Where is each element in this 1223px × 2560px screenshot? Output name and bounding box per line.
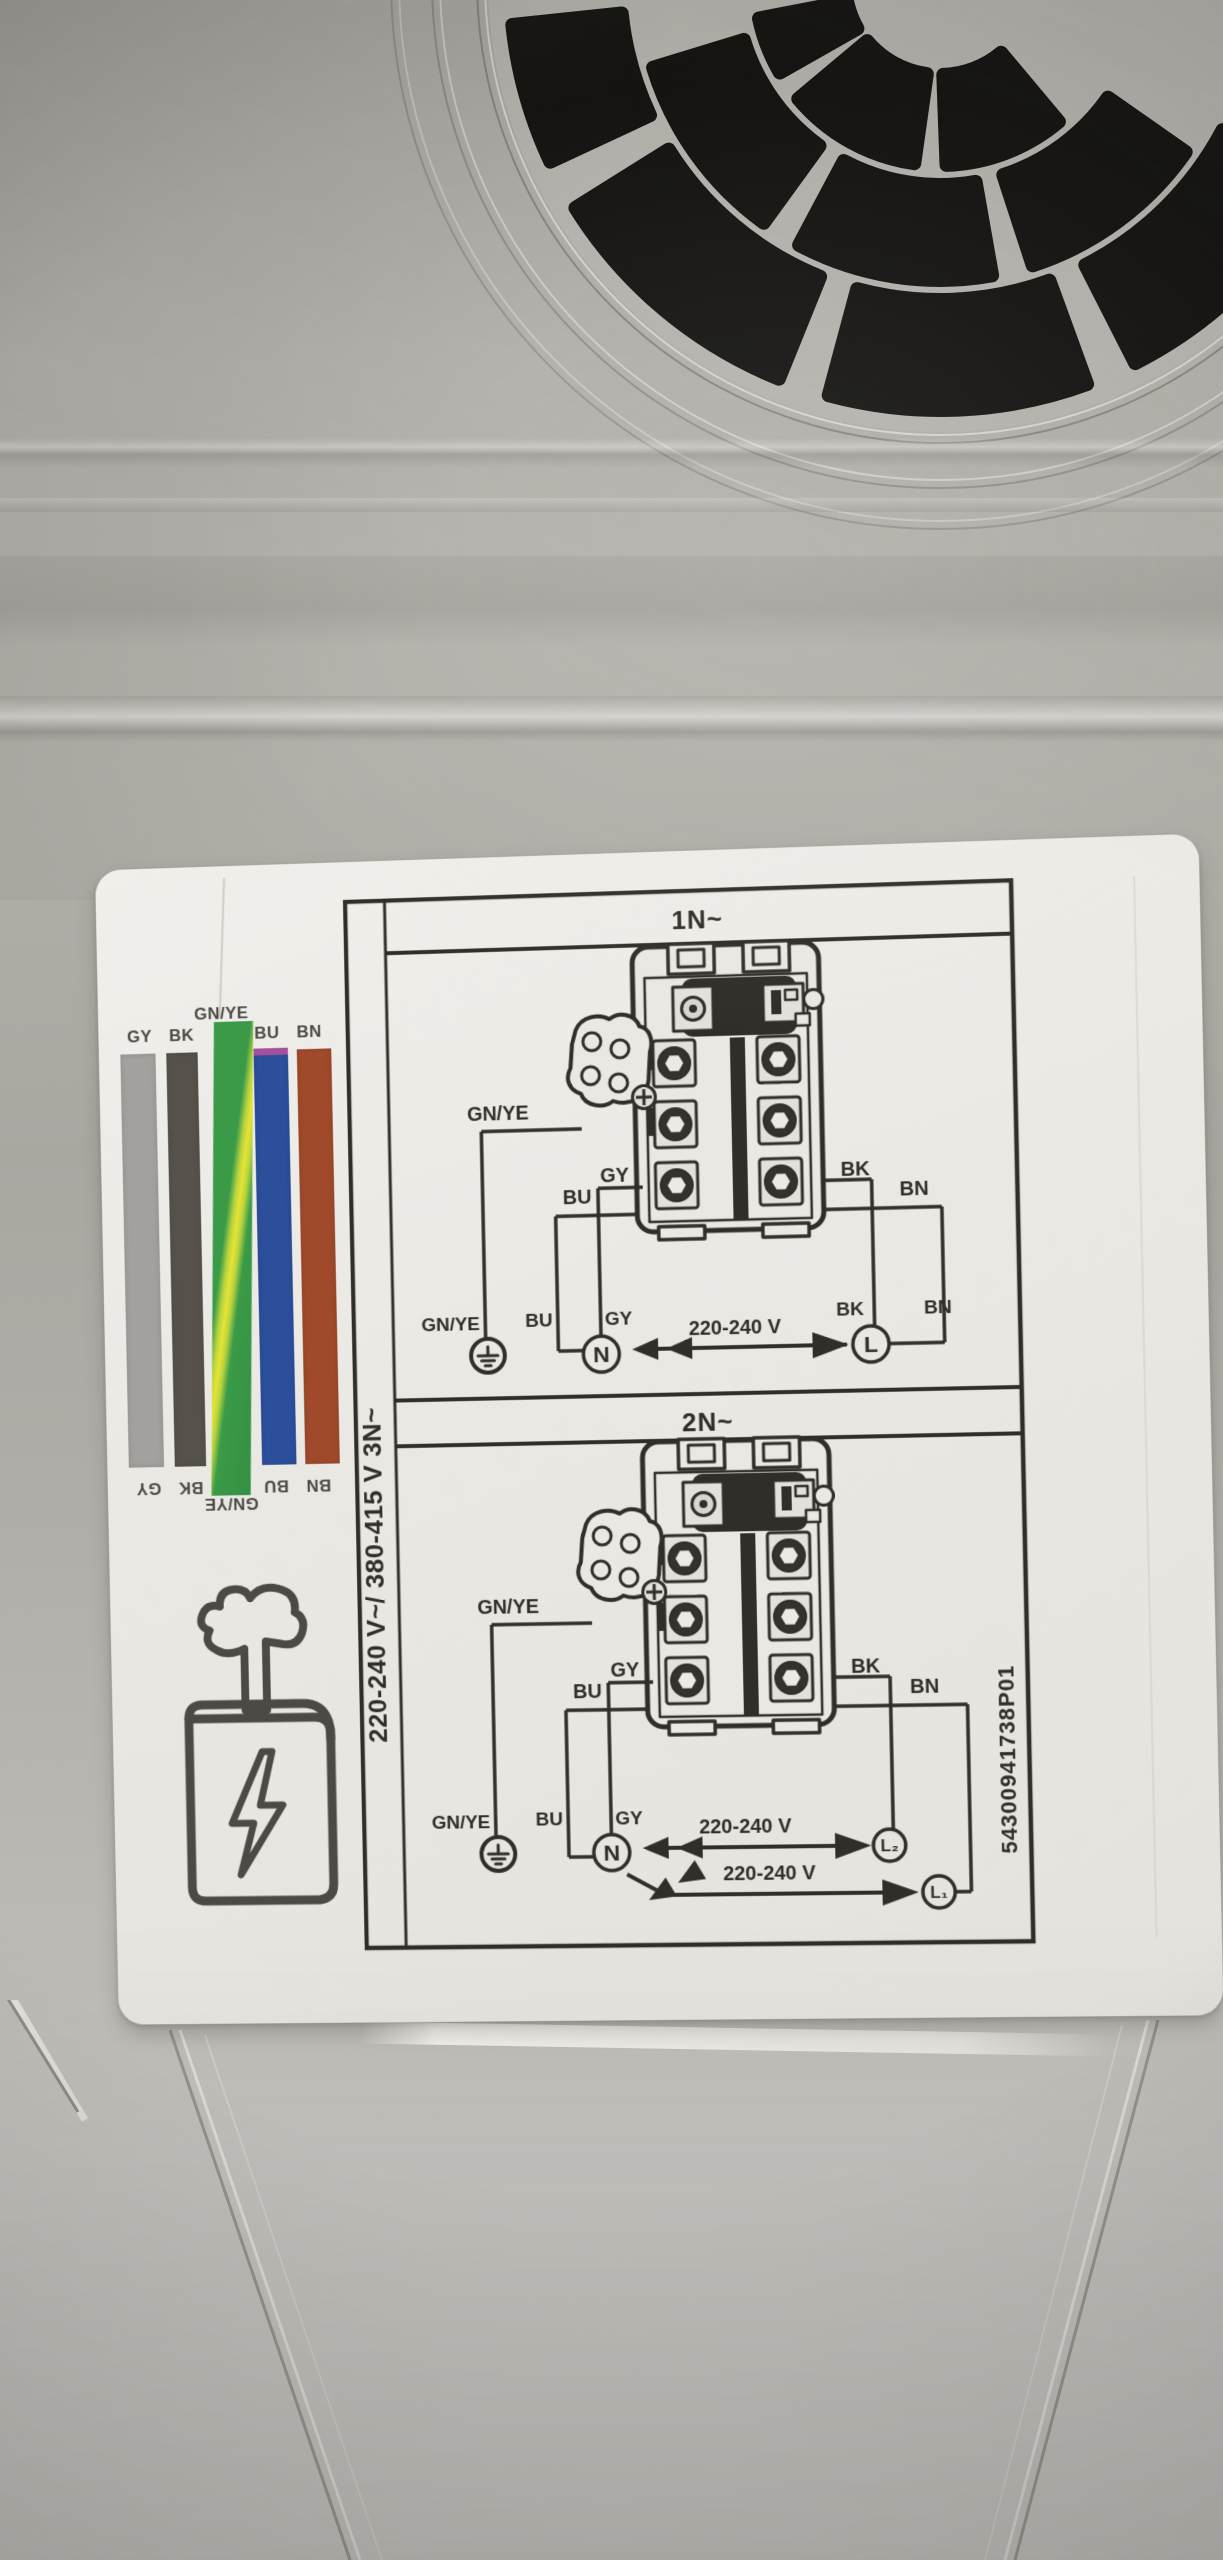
wire-code-label-bn: BN: [279, 1021, 338, 1043]
wire-color-key: GY BK GN/YE BU BN GY BK GN/YE BU BN: [95, 834, 1199, 871]
lower-label-gnye-1n: GN/YE: [421, 1314, 480, 1336]
wire-bn-1n: [824, 1207, 945, 1345]
wire-bn-2n: [834, 1704, 971, 1893]
line-letter-1n: L: [864, 1331, 879, 1358]
sticker-scratch: [219, 878, 225, 1017]
voltage-label-n-l2: 220-240 V: [699, 1815, 793, 1838]
upper-label-gnye-1n: GN/YE: [467, 1102, 529, 1126]
section-title-1n: 1N~: [671, 905, 723, 935]
wire-gnye-2n: [492, 1623, 597, 1837]
neutral-letter-2n: N: [603, 1839, 620, 1865]
lower-label-gy-2n: GY: [615, 1808, 643, 1829]
voltage-label-n-l1: 220-240 V: [723, 1862, 817, 1885]
cooling-fan-grille: [0, 0, 1223, 620]
upper-label-bk-2n: BK: [851, 1655, 881, 1678]
connection-diagram-box: 1N~ 2N~ 220-240 V~/ 380-415 V 3N~ 543009…: [343, 878, 1038, 1955]
wire-code-label-bk: BK: [152, 1025, 211, 1047]
lower-label-gnye-2n: GN/YE: [432, 1812, 491, 1834]
wire-color-bar-brown: [297, 1048, 340, 1464]
wire-bk-2n: [834, 1676, 894, 1829]
wire-color-bar-grey: [120, 1054, 164, 1468]
earth-symbol-2n: [488, 1845, 508, 1864]
terminal-block-1n: [565, 940, 828, 1242]
lower-label-bu-2n: BU: [535, 1809, 563, 1830]
upper-label-bk-1n: BK: [840, 1158, 870, 1181]
blue-bar-top-edge: [253, 1048, 288, 1056]
lower-label-bk-1n: BK: [836, 1299, 864, 1321]
wire-color-bar-blue: [253, 1048, 296, 1465]
upper-label-bn-2n: BN: [910, 1675, 940, 1698]
sticker-crease: [1133, 876, 1157, 1937]
lightning-bolt-icon: [231, 1751, 285, 1875]
earth-symbol-1n: [478, 1347, 498, 1366]
wire-code-label-bn-flipped: BN: [289, 1474, 349, 1495]
rating-strip-divider: [384, 901, 406, 1948]
wire-color-bar-black: [166, 1052, 206, 1466]
pointing-hand-icon: [200, 1587, 305, 1711]
part-number: 54300941738P01: [993, 1664, 1023, 1853]
line2-letter-2n: L₂: [880, 1836, 898, 1855]
terminal-block-2n: [576, 1436, 839, 1736]
upper-label-gy-2n: GY: [610, 1659, 639, 1682]
upper-label-gnye-2n: GN/YE: [477, 1596, 539, 1619]
consult-electrical-manual-icon: [156, 1526, 360, 1916]
upper-label-bn-1n: BN: [899, 1178, 929, 1201]
lower-label-bn-1n: BN: [924, 1297, 952, 1319]
upper-label-bu-2n: BU: [573, 1681, 602, 1704]
wire-color-bar-green-yellow: [211, 1021, 253, 1496]
voltage-rating-vertical-text: 220-240 V~/ 380-415 V 3N~: [358, 1407, 393, 1743]
line1-letter-2n: L₁: [930, 1883, 948, 1902]
panel-ridge: [0, 696, 1223, 742]
section-title-2n: 2N~: [682, 1408, 734, 1437]
lower-label-bu-1n: BU: [525, 1310, 553, 1332]
wire-gnye-1n: [481, 1129, 586, 1339]
upper-label-bu-1n: BU: [563, 1186, 592, 1209]
wiring-diagram-sticker: GY BK GN/YE BU BN GY BK GN/YE BU BN: [95, 834, 1223, 2025]
upper-label-gy-1n: GY: [600, 1164, 629, 1187]
lower-label-gy-1n: GY: [605, 1308, 633, 1330]
voltage-label-1n: 220-240 V: [688, 1316, 782, 1340]
neutral-letter-1n: N: [593, 1341, 610, 1368]
panel-bottom-creases: [0, 2000, 1223, 2560]
manual-book-icon: [189, 1717, 334, 1901]
